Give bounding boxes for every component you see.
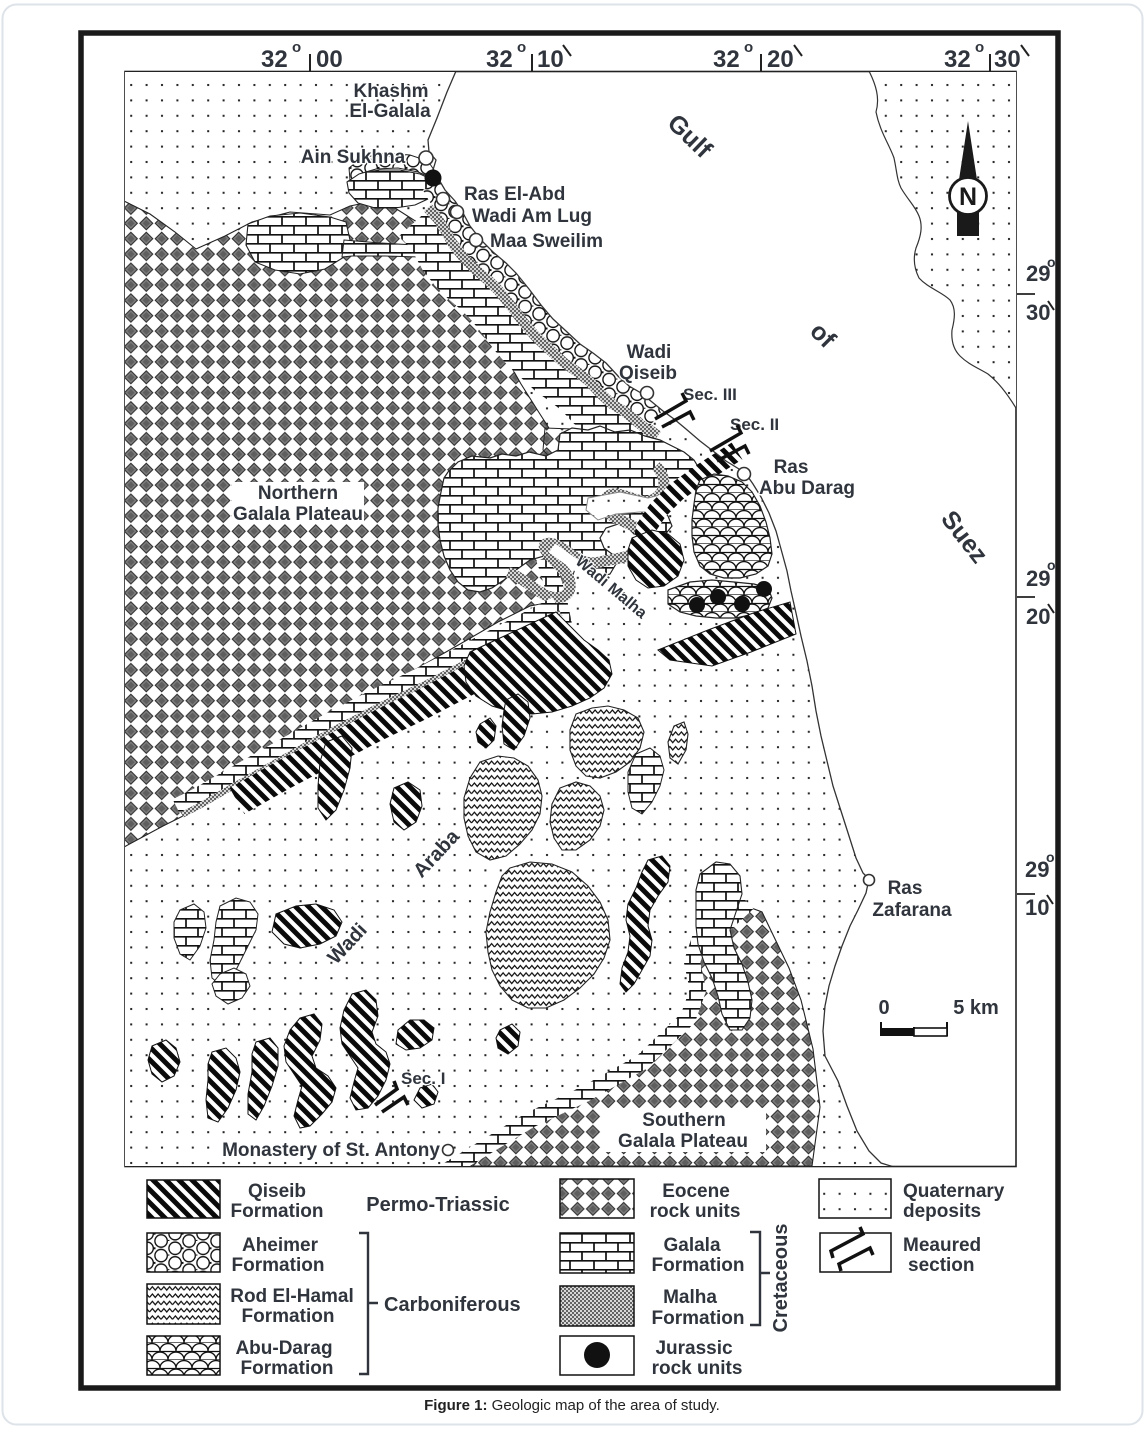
svg-text:o: o xyxy=(744,39,753,56)
svg-text:o: o xyxy=(292,39,301,56)
svg-text:Carboniferous: Carboniferous xyxy=(384,1294,521,1316)
svg-text:Formation: Formation xyxy=(652,1255,745,1276)
svg-text:deposits: deposits xyxy=(903,1201,981,1222)
svg-text:o: o xyxy=(1047,557,1056,573)
svg-text:Cretaceous: Cretaceous xyxy=(770,1224,792,1333)
svg-text:32: 32 xyxy=(486,46,513,73)
svg-text:o: o xyxy=(1046,849,1055,865)
svg-text:Figure 1: Geologic map of the: Figure 1: Geologic map of the area of st… xyxy=(424,1397,720,1414)
svg-text:Aheimer: Aheimer xyxy=(242,1235,319,1256)
svg-text:Monastery of St. Antony: Monastery of St. Antony xyxy=(222,1140,440,1161)
svg-text:Permo-Triassic: Permo-Triassic xyxy=(366,1194,509,1216)
svg-text:rock units: rock units xyxy=(650,1201,741,1222)
svg-text:32: 32 xyxy=(944,46,971,73)
svg-text:10: 10 xyxy=(1025,895,1049,920)
svg-text:30: 30 xyxy=(1026,300,1050,325)
svg-text:Quaternary: Quaternary xyxy=(903,1181,1005,1202)
svg-text:Galala Plateau: Galala Plateau xyxy=(618,1131,748,1152)
svg-text:section: section xyxy=(908,1255,975,1276)
svg-text:Sec. III: Sec. III xyxy=(683,385,737,404)
svg-text:Galala: Galala xyxy=(663,1235,720,1256)
svg-text:Ras: Ras xyxy=(774,457,809,478)
svg-text:o: o xyxy=(975,39,984,56)
svg-text:Formation: Formation xyxy=(652,1308,745,1329)
svg-text:Ras El-Abd: Ras El-Abd xyxy=(464,184,565,205)
svg-text:Jurassic: Jurassic xyxy=(655,1338,733,1359)
svg-text:Qiseib: Qiseib xyxy=(619,363,677,384)
svg-text:o: o xyxy=(517,39,526,56)
svg-text:Sec. I: Sec. I xyxy=(401,1069,445,1088)
svg-text:Malha: Malha xyxy=(663,1287,717,1308)
svg-text:32: 32 xyxy=(713,46,740,73)
svg-text:Formation: Formation xyxy=(241,1358,334,1379)
svg-text:El-Galala: El-Galala xyxy=(349,101,431,122)
svg-text:Khashm: Khashm xyxy=(354,81,429,102)
svg-text:Zafarana: Zafarana xyxy=(872,900,952,921)
svg-text:5 km: 5 km xyxy=(953,997,999,1019)
svg-text:rock units: rock units xyxy=(652,1358,743,1379)
svg-text:Ain Sukhna: Ain Sukhna xyxy=(301,147,406,168)
svg-text:o: o xyxy=(1047,254,1056,270)
svg-text:20: 20 xyxy=(767,46,794,73)
svg-text:Wadi: Wadi xyxy=(627,342,672,363)
svg-text:Formation: Formation xyxy=(232,1255,325,1276)
svg-text:Abu Darag: Abu Darag xyxy=(759,478,855,499)
svg-text:Wadi Am Lug: Wadi Am Lug xyxy=(472,206,592,227)
svg-text:32: 32 xyxy=(261,46,288,73)
svg-text:00: 00 xyxy=(316,46,343,73)
svg-text:Qiseib: Qiseib xyxy=(248,1181,306,1202)
svg-text:Sec. II: Sec. II xyxy=(730,415,779,434)
svg-text:Northern: Northern xyxy=(258,483,338,504)
svg-text:0: 0 xyxy=(878,997,889,1019)
svg-text:Formation: Formation xyxy=(242,1306,335,1327)
svg-text:Southern: Southern xyxy=(642,1110,725,1131)
svg-text:Rod El-Hamal: Rod El-Hamal xyxy=(230,1286,354,1307)
svg-text:Meaured: Meaured xyxy=(903,1235,981,1256)
svg-text:30: 30 xyxy=(994,46,1021,73)
svg-text:20: 20 xyxy=(1026,604,1050,629)
svg-text:Eocene: Eocene xyxy=(662,1181,730,1202)
svg-text:Formation: Formation xyxy=(231,1201,324,1222)
svg-text:N: N xyxy=(959,183,977,211)
svg-text:Galala Plateau: Galala Plateau xyxy=(233,504,363,525)
svg-text:10: 10 xyxy=(537,46,564,73)
svg-text:Abu-Darag: Abu-Darag xyxy=(235,1338,332,1359)
svg-text:Ras: Ras xyxy=(888,878,923,899)
svg-text:Maa Sweilim: Maa Sweilim xyxy=(490,231,603,252)
